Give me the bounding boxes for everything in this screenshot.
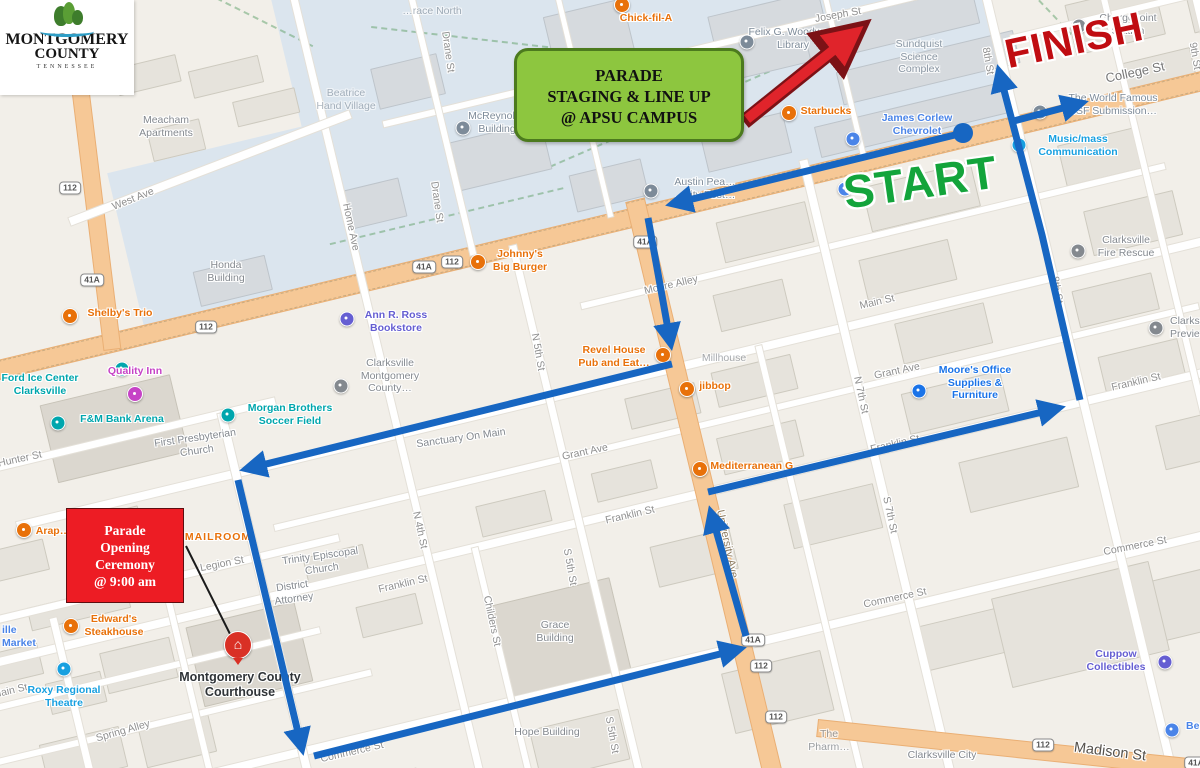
staging-callout-box: PARADE STAGING & LINE UP @ APSU CAMPUS <box>514 48 744 142</box>
parade-route-arrow <box>1010 104 1078 122</box>
staging-line-3: @ APSU CAMPUS <box>517 107 741 128</box>
staging-line-1: PARADE <box>517 65 741 86</box>
parade-route-map: 11241A11241A11241A41A11211211241A Joseph… <box>0 0 1200 768</box>
logo-county-word: COUNTY <box>0 47 134 62</box>
parade-route-arrow <box>712 516 746 636</box>
parade-route-arrow <box>708 409 1055 492</box>
logo-state-name: TENNESSEE <box>0 64 134 70</box>
parade-route-arrow <box>648 218 670 340</box>
ceremony-line-4: @ 9:00 am <box>67 573 183 590</box>
route-start-dot <box>953 123 973 143</box>
ceremony-line-2: Opening <box>67 539 183 556</box>
parade-route-arrow <box>238 480 301 745</box>
montgomery-county-logo: MONTGOMERY COUNTY TENNESSEE <box>0 0 134 95</box>
staging-line-2: STAGING & LINE UP <box>517 86 741 107</box>
ceremony-line-1: Parade <box>67 522 183 539</box>
parade-route-arrow <box>314 650 736 756</box>
parade-route-arrow <box>250 364 672 468</box>
logo-trees-icon <box>52 4 82 30</box>
courthouse-pin-icon: ⌂ <box>224 631 252 659</box>
staging-arrow <box>747 36 851 119</box>
courthouse-leader-line <box>186 546 232 638</box>
ceremony-line-3: Ceremony <box>67 556 183 573</box>
ceremony-callout-box: Parade Opening Ceremony @ 9:00 am <box>66 508 184 603</box>
